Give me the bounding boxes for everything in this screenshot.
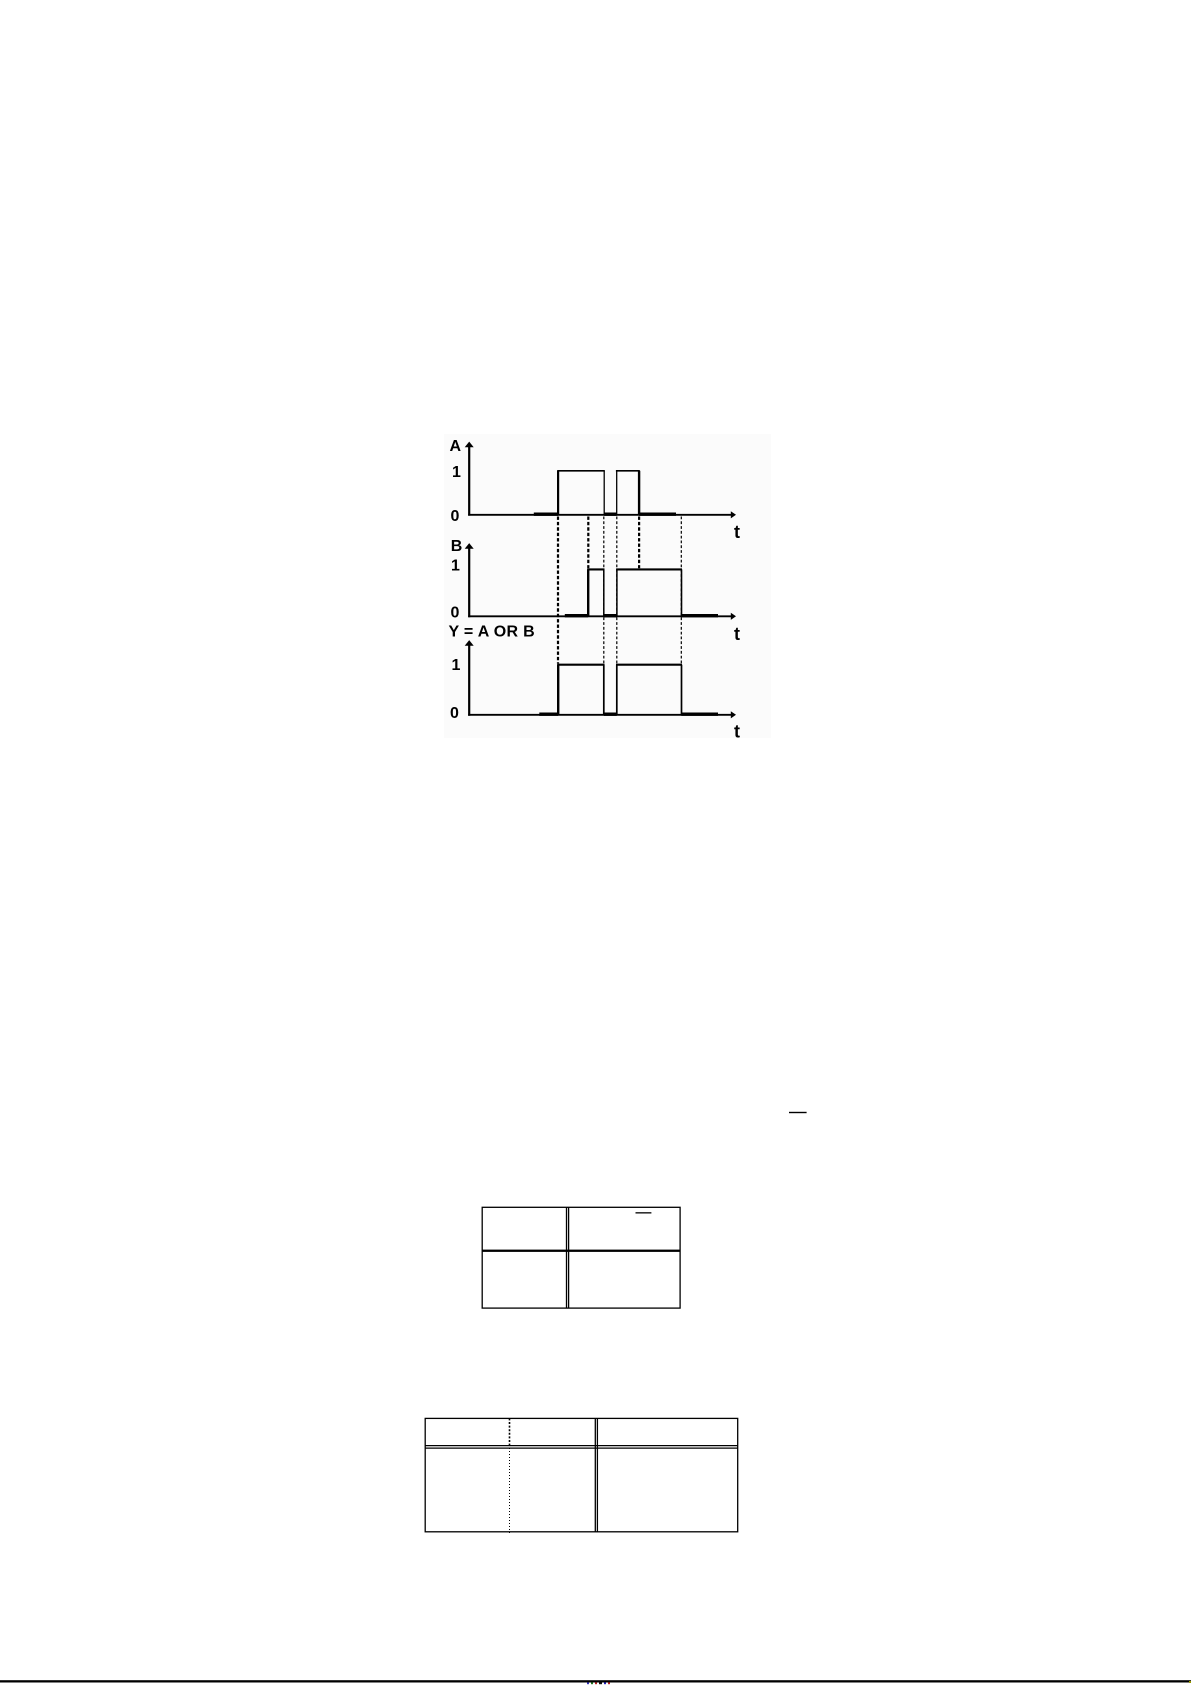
svg-text:0: 0 [451,605,460,622]
svg-text:t: t [734,721,740,741]
svg-text:0: 0 [450,705,459,722]
svg-text:0: 0 [451,508,460,525]
svg-text:1: 1 [451,558,460,575]
svg-text:1: 1 [452,657,461,674]
svg-text:t: t [734,522,740,542]
svg-text:A: A [450,438,462,455]
svg-text:Y = A OR B: Y = A OR B [449,624,535,641]
svg-text:1: 1 [452,464,461,481]
svg-text:B: B [451,538,463,555]
svg-text:t: t [734,624,740,644]
